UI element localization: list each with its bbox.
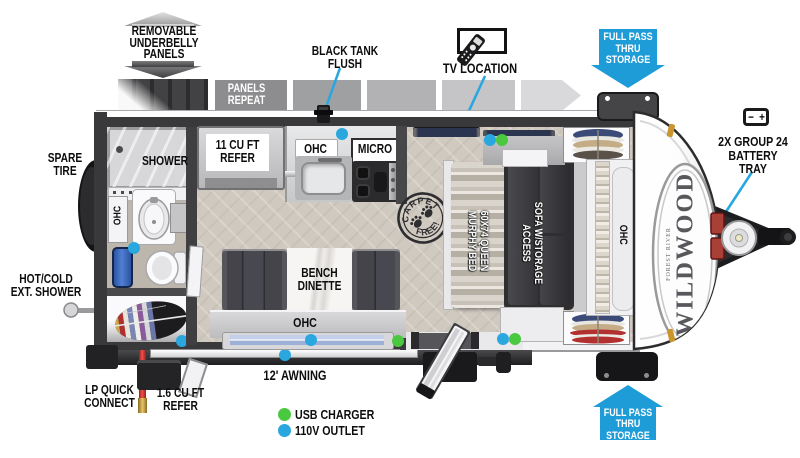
svg-text:WILDWOOD: WILDWOOD: [672, 172, 699, 336]
svg-text:FOREST RIVER: FOREST RIVER: [666, 227, 672, 281]
